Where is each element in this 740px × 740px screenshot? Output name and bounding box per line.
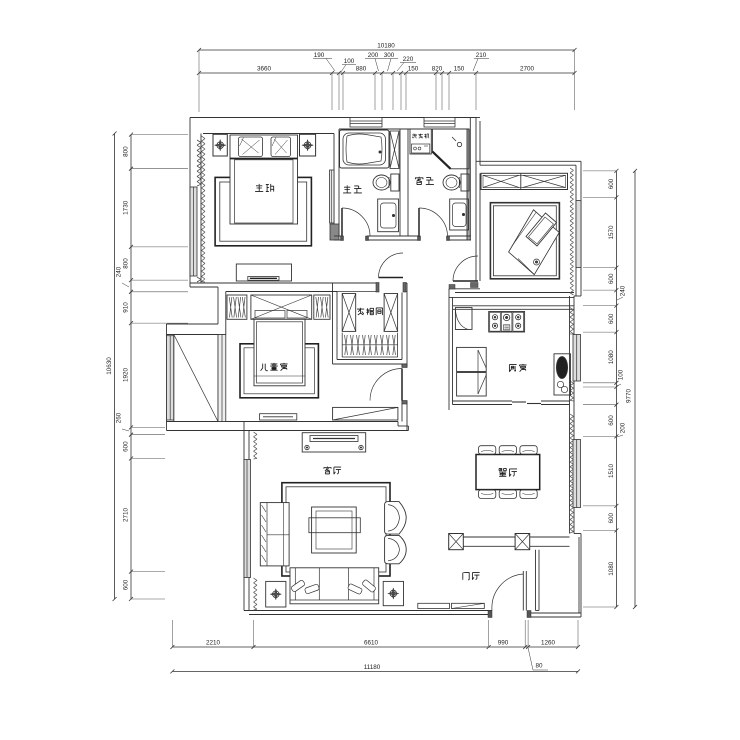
svg-text:600: 600 xyxy=(123,579,130,590)
svg-text:1080: 1080 xyxy=(608,350,615,365)
svg-text:2210: 2210 xyxy=(206,640,221,647)
svg-text:910: 910 xyxy=(123,302,130,313)
svg-text:800: 800 xyxy=(123,146,130,157)
svg-text:600: 600 xyxy=(608,512,615,523)
svg-text:1570: 1570 xyxy=(608,225,615,240)
svg-text:100: 100 xyxy=(618,369,625,380)
svg-text:600: 600 xyxy=(608,178,615,189)
svg-text:200: 200 xyxy=(620,422,627,433)
svg-text:990: 990 xyxy=(498,640,509,647)
svg-text:200: 200 xyxy=(368,52,379,59)
svg-text:600: 600 xyxy=(608,313,615,324)
svg-text:150: 150 xyxy=(408,66,419,73)
svg-text:600: 600 xyxy=(608,415,615,426)
svg-text:150: 150 xyxy=(454,66,465,73)
svg-text:6610: 6610 xyxy=(364,640,379,647)
svg-text:220: 220 xyxy=(403,56,414,63)
svg-text:820: 820 xyxy=(432,66,443,73)
svg-text:1730: 1730 xyxy=(123,200,130,215)
svg-text:240: 240 xyxy=(620,285,627,296)
svg-text:1080: 1080 xyxy=(608,561,615,576)
svg-text:600: 600 xyxy=(608,273,615,284)
svg-text:800: 800 xyxy=(123,258,130,269)
svg-text:300: 300 xyxy=(384,52,395,59)
svg-text:10630: 10630 xyxy=(106,357,113,375)
svg-text:9770: 9770 xyxy=(626,389,633,404)
svg-text:11180: 11180 xyxy=(364,664,381,671)
svg-text:1920: 1920 xyxy=(123,368,130,383)
svg-text:100: 100 xyxy=(344,58,355,65)
svg-text:2700: 2700 xyxy=(520,66,535,73)
svg-text:190: 190 xyxy=(314,52,325,59)
svg-text:3660: 3660 xyxy=(257,66,272,73)
svg-text:260: 260 xyxy=(116,412,123,423)
svg-text:600: 600 xyxy=(123,441,130,452)
svg-text:1260: 1260 xyxy=(541,640,556,647)
svg-text:10180: 10180 xyxy=(377,43,395,50)
svg-text:80: 80 xyxy=(535,663,543,670)
svg-text:240: 240 xyxy=(116,266,123,277)
svg-text:880: 880 xyxy=(356,66,367,73)
svg-text:1510: 1510 xyxy=(608,464,615,479)
svg-text:210: 210 xyxy=(476,52,487,59)
svg-text:2710: 2710 xyxy=(123,508,130,523)
